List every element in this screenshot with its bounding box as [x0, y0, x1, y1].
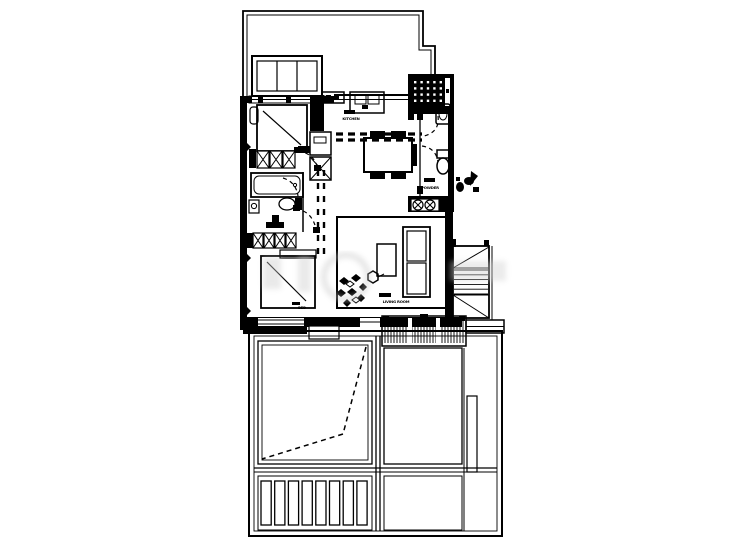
- chair: [391, 172, 406, 179]
- entry-closet: [408, 196, 454, 212]
- compass-icon: [456, 171, 479, 192]
- coffee-table: [377, 244, 396, 276]
- floor-plan-page: BED KITCHEN: [0, 0, 740, 550]
- terrace-right-panel: [384, 348, 462, 464]
- kitchen-label: KITCHEN: [342, 116, 359, 121]
- terrace-door-opening: [360, 318, 380, 327]
- bedroom-label: BED: [298, 305, 306, 310]
- bench: [412, 144, 417, 166]
- dining-area: [364, 131, 417, 179]
- entry-foyer: [408, 74, 452, 136]
- bathroom: [249, 172, 303, 232]
- living-room: LIVING ROOM: [336, 217, 446, 308]
- chair: [370, 131, 385, 138]
- bathtub: [251, 173, 303, 197]
- closet-row-top: [249, 149, 295, 168]
- door-swing-bed2: [296, 209, 316, 229]
- terrace-bottom-right-cell: [384, 476, 462, 530]
- vanity-sink: [249, 200, 259, 213]
- south-window: [254, 318, 308, 326]
- living-room-label: LIVING ROOM: [383, 299, 410, 304]
- sofa: [403, 227, 430, 297]
- terrace-planter: [467, 396, 477, 472]
- door-swing-powder: [422, 146, 438, 162]
- floor-plan-drawing: BED KITCHEN: [0, 0, 740, 550]
- terrace-left-panel: [258, 341, 372, 464]
- appliance-cabinet: [310, 157, 331, 180]
- louvers: [261, 481, 367, 525]
- dining-table: [364, 138, 412, 172]
- door-swing-bath: [283, 178, 298, 196]
- terrace-step: [309, 326, 339, 339]
- terrace-louver-band: [258, 476, 372, 530]
- terrace-slope-dash: [262, 347, 366, 459]
- chair: [370, 172, 385, 179]
- terrace: [249, 331, 502, 536]
- powder-label: POWDER: [421, 185, 439, 190]
- chair: [391, 131, 406, 138]
- closet-row-bottom: [247, 233, 296, 248]
- watermark: [263, 255, 506, 299]
- powder-room: POWDER: [417, 104, 450, 196]
